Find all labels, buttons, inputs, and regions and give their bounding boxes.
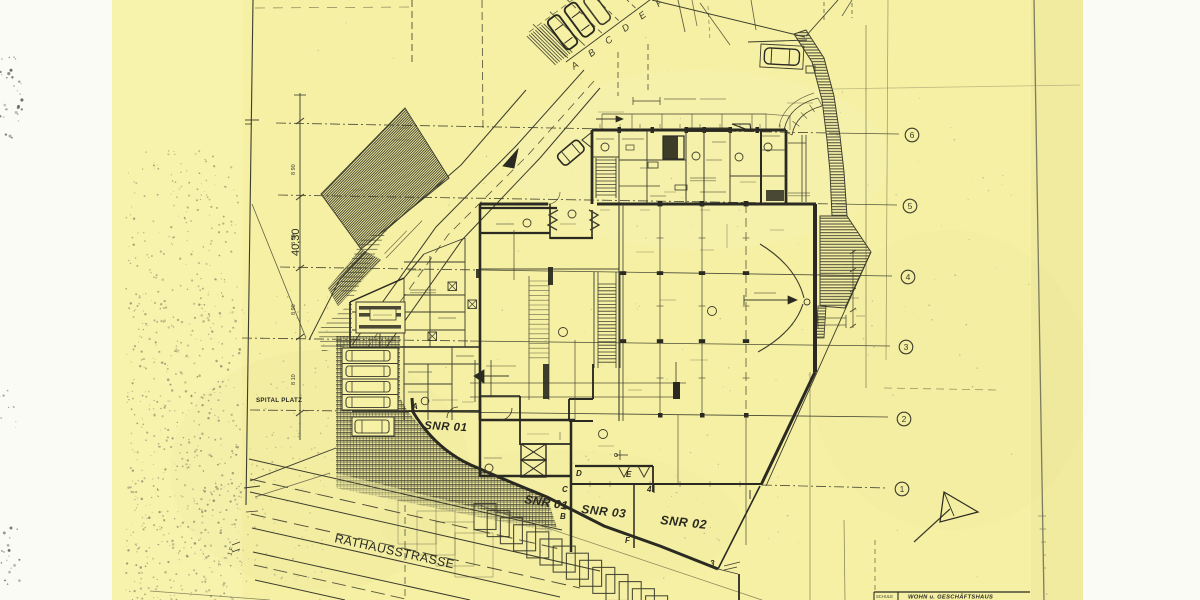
svg-text:SNR 01: SNR 01 [424, 420, 468, 434]
svg-text:3: 3 [904, 342, 909, 352]
svg-text:SCHULE: SCHULE [876, 594, 893, 599]
svg-text:6: 6 [910, 130, 915, 140]
svg-text:4: 4 [646, 485, 652, 494]
svg-text:C: C [562, 485, 568, 494]
svg-text:E: E [626, 470, 632, 479]
svg-text:WOHN u. GESCHÄFTSHAUS: WOHN u. GESCHÄFTSHAUS [908, 594, 993, 600]
svg-text:8 90: 8 90 [291, 164, 297, 175]
svg-text:4: 4 [906, 272, 911, 282]
svg-text:B: B [560, 512, 566, 521]
svg-text:A: A [411, 402, 418, 411]
svg-text:2: 2 [902, 414, 907, 424]
svg-text:1: 1 [900, 484, 905, 494]
svg-text:3: 3 [710, 559, 715, 568]
svg-text:D: D [576, 469, 582, 478]
svg-text:40,30: 40,30 [290, 228, 302, 256]
svg-text:8 10: 8 10 [291, 374, 297, 385]
svg-text:SPITAL PLATZ: SPITAL PLATZ [256, 397, 302, 404]
svg-text:5: 5 [908, 201, 913, 211]
